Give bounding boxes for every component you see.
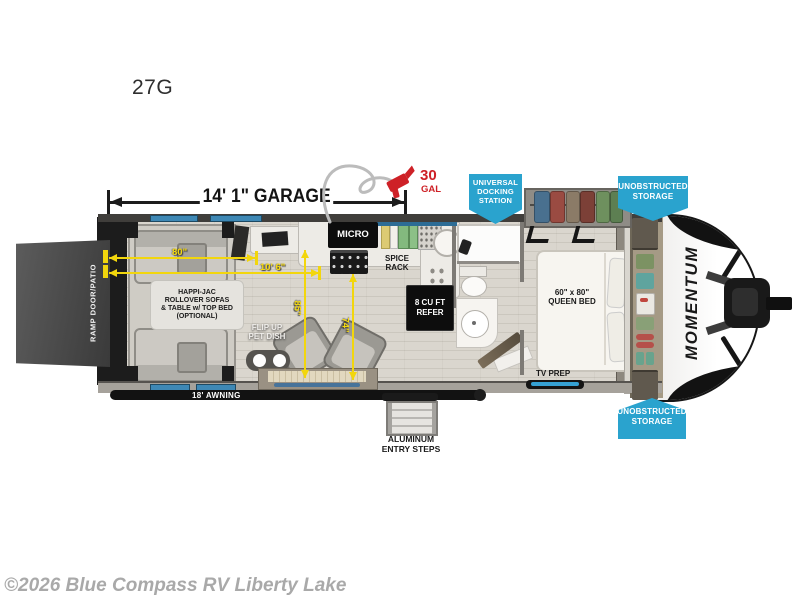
- badge-storage-top-line1: UNOBSTRUCTED: [618, 182, 688, 192]
- dim-80-arrow-left: [109, 254, 117, 262]
- dim-85-arrow-down: [301, 370, 309, 378]
- badge-docking-line2: DOCKING: [477, 187, 514, 196]
- bedroom-wall-bottom: [520, 330, 524, 375]
- dim-80-label: 80": [172, 247, 187, 258]
- model-title: 27G: [132, 76, 173, 100]
- steps-label-line2: ENTRY STEPS: [372, 444, 450, 454]
- pet-dish-bowl-2: [273, 354, 286, 367]
- tv-prep-label: TV PREP: [536, 369, 570, 378]
- steps-label-line1: ALUMINUM: [372, 434, 450, 444]
- slide-corner-tl: [126, 222, 138, 238]
- badge-unobstructed-storage-bottom: UNOBSTRUCTED STORAGE: [618, 398, 686, 439]
- rv-floorplan-image: 27G ©2026 Blue Compass RV Liberty Lake 1…: [0, 0, 800, 600]
- hitch-coupler-detail: [732, 288, 758, 316]
- dim-106-arrow-left: [109, 269, 117, 277]
- spice-rack-line2: RACK: [372, 263, 422, 272]
- hanging-clothes-green-1: [596, 191, 610, 223]
- entry-steps: [386, 401, 438, 436]
- dim-74-arrow-down: [349, 372, 357, 380]
- dim-106-line: [109, 272, 319, 274]
- slide-corner-tr: [222, 222, 234, 238]
- storage-bottle-2: [646, 352, 654, 365]
- slide-corner-bl: [126, 366, 138, 382]
- bedroom-wall-top: [520, 222, 524, 282]
- storage-box-mark: [640, 298, 648, 302]
- sofa-label-line2: ROLLOVER SOFAS: [165, 297, 230, 305]
- pet-dish-label-line2: PET DISH: [240, 333, 294, 342]
- spice-rack-label: SPICE RACK: [372, 254, 422, 273]
- bed-seam: [604, 253, 606, 365]
- awning-end-cap: [474, 389, 486, 401]
- storage-bin-plaid: [636, 317, 654, 330]
- refer-line2: REFER: [416, 308, 443, 318]
- toilet-bowl: [461, 276, 487, 297]
- bed-lift-bracket-1: [526, 226, 553, 243]
- fuel-capacity-value: 30: [420, 167, 437, 184]
- yellow-tick-ramp-2: [103, 265, 108, 278]
- spice-rack-line1: SPICE: [372, 254, 422, 263]
- hanging-clothes-blue: [534, 191, 550, 223]
- dim-80-tick: [255, 251, 258, 265]
- awning-label: 18' AWNING: [192, 391, 241, 400]
- storage-bottle-1: [636, 352, 644, 365]
- storage-bin-green: [636, 254, 654, 269]
- badge-storage-bottom-line2: STORAGE: [632, 417, 673, 427]
- momentum-logo: MOMENTUM: [682, 246, 702, 360]
- window-strip-1: [150, 215, 198, 222]
- step-mount: [382, 393, 438, 401]
- ramp-door-label: RAMP DOOR/PATIO: [89, 264, 98, 342]
- sofa-label-line3: & TABLE w/ TOP BED: [161, 305, 233, 313]
- storage-roll-red-2: [636, 342, 654, 348]
- cutting-board-yellow: [381, 225, 390, 249]
- dim-74-label: 74": [340, 317, 351, 332]
- hitch-tongue: [766, 297, 792, 310]
- sofa-table-bottom: [177, 342, 207, 373]
- sink-drain: [472, 321, 476, 325]
- dim-85-arrow-up: [301, 250, 309, 258]
- queen-bed-label: 60" x 80" QUEEN BED: [540, 288, 604, 307]
- sofa-label-line1: HAPPI-JAC: [178, 289, 216, 297]
- badge-storage-bottom-line1: UNOBSTRUCTED: [617, 407, 687, 417]
- storage-cabinet-bottom: [632, 370, 658, 400]
- bed-lift-bracket-2: [572, 226, 599, 243]
- hanging-clothes-red: [550, 191, 565, 223]
- dish-rack-green-1: [398, 225, 409, 249]
- dim-74-line: [352, 274, 354, 380]
- refrigerator: 8 CU FT REFER: [406, 285, 454, 331]
- refer-line1: 8 CU FT: [415, 298, 445, 308]
- dim-85-label: 85": [292, 300, 303, 315]
- storage-bin-teal: [636, 273, 654, 289]
- dim-85-line: [304, 250, 306, 378]
- dim-106-arrow-right: [311, 269, 319, 277]
- storage-cabinet-top: [632, 218, 658, 250]
- slide-corner-br: [222, 366, 234, 382]
- kitchen-shelf-item: [262, 231, 289, 247]
- bed-label-line1: 60" x 80": [540, 288, 604, 297]
- dim-80-arrow-right: [247, 254, 255, 262]
- garage-dim-arrow-left: [110, 197, 122, 207]
- window-strip-2: [210, 215, 262, 222]
- fuel-hose-icon: [314, 154, 432, 228]
- storage-box-white: [636, 293, 655, 315]
- bed-label-line2: QUEEN BED: [540, 297, 604, 306]
- cutting-board-white: [390, 225, 398, 249]
- bathroom-divider: [457, 261, 519, 264]
- microwave-label: MICRO: [337, 229, 369, 241]
- badge-storage-top-line2: STORAGE: [633, 192, 674, 202]
- hanging-clothes-tan: [566, 191, 580, 223]
- storage-roll-red-1: [636, 334, 654, 340]
- hanging-clothes-maroon: [580, 191, 595, 223]
- pet-dish-label: FLIP UP PET DISH: [240, 324, 294, 342]
- cooktop: [330, 250, 368, 274]
- dim-74-arrow-up: [349, 274, 357, 282]
- entry-steps-label: ALUMINUM ENTRY STEPS: [372, 434, 450, 454]
- sofa-label-line4: (OPTIONAL): [177, 313, 218, 321]
- tv-prep-screen: [531, 382, 579, 386]
- dim-106-label: 10' 6": [260, 262, 285, 273]
- dish-rack-green-2: [409, 225, 418, 249]
- entry-threshold: [274, 383, 360, 387]
- dealer-watermark: ©2026 Blue Compass RV Liberty Lake: [4, 575, 346, 597]
- badge-docking-line1: UNIVERSAL: [473, 178, 518, 187]
- pet-dish-bowl-1: [253, 354, 266, 367]
- yellow-tick-ramp-1: [103, 250, 108, 263]
- sofa-option-label: HAPPI-JAC ROLLOVER SOFAS & TABLE w/ TOP …: [150, 280, 244, 330]
- badge-docking-line3: STATION: [479, 196, 512, 205]
- fuel-capacity-unit: GAL: [421, 184, 441, 195]
